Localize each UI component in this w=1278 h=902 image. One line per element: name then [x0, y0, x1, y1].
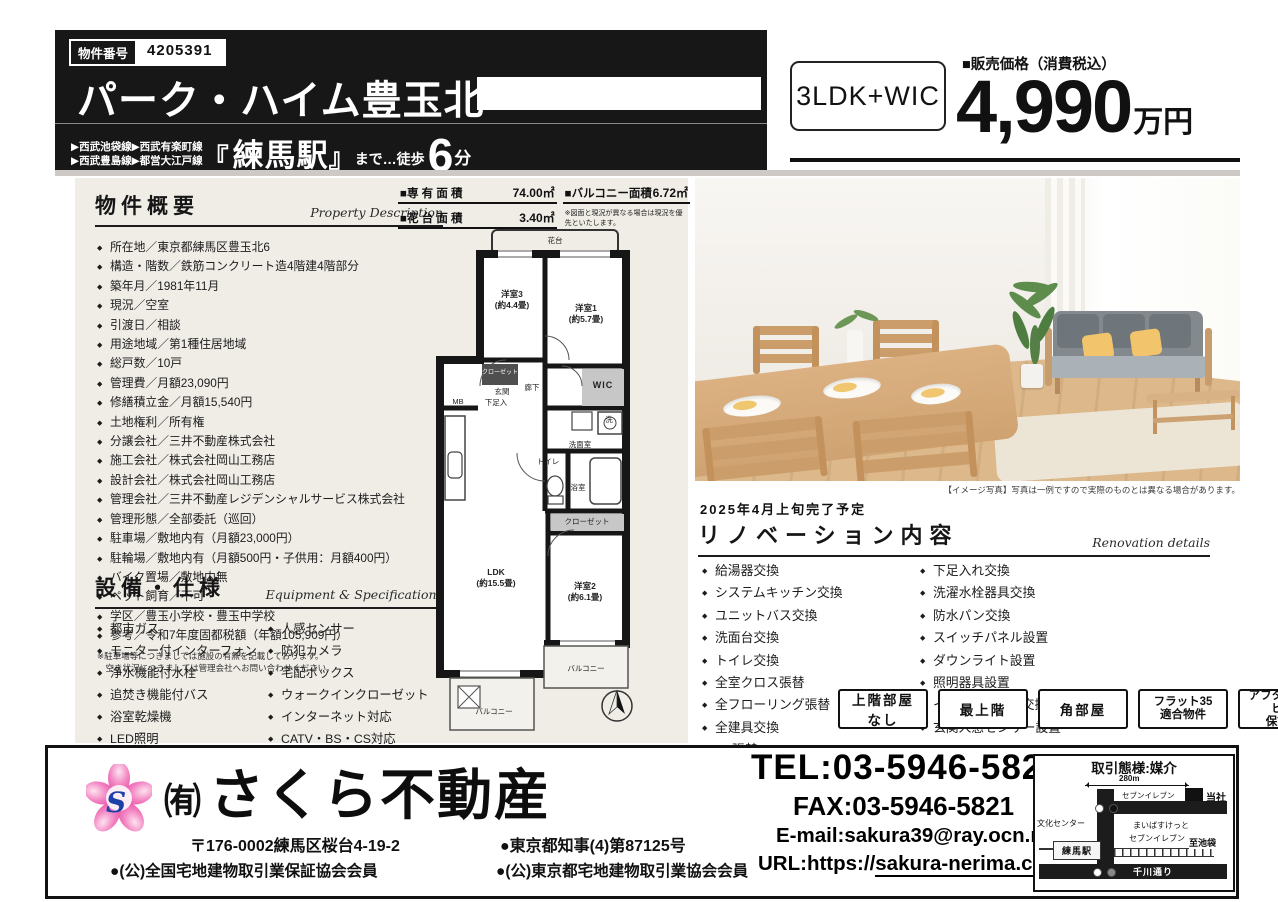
- floor-plan-label: 浴室: [571, 483, 586, 493]
- floor-plan-label: トイレ: [537, 457, 560, 467]
- feature-badge: 最上階: [938, 689, 1028, 729]
- floor-plan-label: 洗面室: [569, 440, 592, 450]
- overview-item: 引渡日／相談: [97, 316, 427, 335]
- renovation-heading: リノベーション内容 Renovation details: [698, 518, 1210, 557]
- traffic-signal-icon: [1107, 868, 1116, 877]
- plant-pot: [1021, 364, 1043, 388]
- our-office-label: 当社: [1206, 789, 1226, 804]
- price-unit: 万円: [1133, 97, 1193, 141]
- area-label-1: ■専 有 面 積: [400, 185, 463, 201]
- company-name: さくら不動産: [209, 750, 551, 830]
- floor-plan-label: 花台: [548, 236, 563, 246]
- equipment-list-left: 都市ガスモニター付インターフォン浄水機能付水栓追焚き機能付バス浴室乾燥機LED照…: [97, 618, 265, 750]
- area-label-3: ■花 台 面 積: [400, 210, 463, 226]
- area-value-1: 74.00㎡: [513, 184, 555, 201]
- equipment-item: 追焚き機能付バス: [97, 684, 265, 706]
- station-line: [1039, 848, 1053, 850]
- logo-letter: S: [106, 786, 126, 819]
- company-license: ●東京都知事(4)第87125号: [500, 832, 686, 856]
- overview-item: 分譲会社／三井不動産株式会社: [97, 432, 427, 451]
- floor-plan-label: 下足入: [485, 398, 508, 408]
- membership-1: ●(公)全国宅地建物取引業保証協会会員: [110, 859, 378, 881]
- floor-plan-label: クローゼット: [565, 517, 610, 527]
- walk-minutes: 6: [428, 135, 454, 175]
- price-amount: 4,990: [956, 62, 1131, 152]
- floor-plan-label: 玄関: [495, 387, 510, 397]
- office-building-icon: [1185, 788, 1203, 801]
- traffic-signal-icon: [1095, 804, 1104, 813]
- feature-badge: フラット35 適合物件: [1138, 689, 1228, 729]
- layout-badge: 3LDK+WIC: [790, 61, 946, 131]
- price-underline: [790, 158, 1240, 162]
- distance-label: 280m: [1117, 774, 1141, 783]
- floor-plan-label: WIC: [593, 380, 614, 392]
- url-prefix: URL:https://: [758, 852, 875, 875]
- rail-line-1: ▶西武池袋線▶西武有楽町線: [71, 140, 203, 154]
- overview-item: 管理費／月額23,090円: [97, 374, 427, 393]
- floor-plan-drawing: [420, 226, 690, 743]
- floor-plan-label: 洋室1 (約5.7畳): [569, 303, 603, 325]
- floor-plan-label: 洋室3 (約4.4畳): [495, 289, 529, 311]
- overview-item: 用途地域／第1種住居地域: [97, 335, 427, 354]
- map-canvas: 280m セブンイレブン 当社 文化センター まいばすけっと セブンイレブン 至…: [1037, 776, 1227, 886]
- overview-item: 駐輪場／敷地内有（月額500円・子供用：月額400円）: [97, 549, 427, 568]
- equipment-heading: 設備・仕様 Equipment & Specifications: [95, 572, 443, 609]
- interior-photo: [695, 178, 1240, 481]
- renovation-item: 給湯器交換: [702, 560, 920, 582]
- sofa-seat: [1049, 356, 1207, 378]
- plan-areas: ■専 有 面 積 74.00㎡ ■バルコニー面積 6.72㎡ ■花 台 面 積 …: [398, 183, 690, 229]
- property-title: パーク・ハイム豊玉北: [77, 68, 485, 126]
- sofa-pillow: [1129, 328, 1162, 358]
- property-number-label: 物件番号: [71, 41, 135, 64]
- flyer-page: 物件番号 4205391 パーク・ハイム豊玉北 ▶西武池袋線▶西武有楽町線 ▶西…: [0, 0, 1278, 902]
- rail-line-2: ▶西武豊島線▶都営大江戸線: [71, 154, 203, 168]
- overview-item: 現況／空室: [97, 296, 427, 315]
- renovation-list-left: 給湯器交換システムキッチン交換ユニットバス交換洗面台交換トイレ交換全室クロス張替…: [702, 560, 920, 762]
- culture-center-label: 文化センター: [1037, 818, 1085, 829]
- fax-number: FAX:03-5946-5821: [793, 791, 1014, 822]
- renovation-item: 洗面台交換: [702, 627, 920, 649]
- floor-plan-label: バルコニー: [567, 664, 604, 674]
- floor-plan-label: 廊下: [525, 383, 540, 393]
- website-url: URL:https://sakura-nerima.com: [758, 852, 1063, 876]
- title-redaction-box: [477, 77, 761, 110]
- floor-plan-label: LDK (約15.5畳): [476, 567, 515, 589]
- header-band: 物件番号 4205391 パーク・ハイム豊玉北 ▶西武池袋線▶西武有楽町線 ▶西…: [55, 30, 767, 170]
- renovation-lists: 給湯器交換システムキッチン交換ユニットバス交換洗面台交換トイレ交換全室クロス張替…: [702, 560, 1210, 762]
- dining-chair: [852, 411, 977, 481]
- equipment-item: 浄水機能付水栓: [97, 662, 265, 684]
- property-number-badge: 物件番号 4205391: [69, 39, 226, 66]
- to-ikebukuro-label: 至池袋: [1189, 836, 1216, 849]
- renovation-item: 防水パン交換: [920, 605, 1210, 627]
- overview-item: 所在地／東京都練馬区豊玉北6: [97, 238, 427, 257]
- equipment-item: モニター付インターフォン: [97, 640, 265, 662]
- feature-badges: 上階部屋なし最上階角部屋フラット35 適合物件アフターサービス 保証付: [838, 689, 1278, 729]
- railway-line: [1114, 848, 1214, 857]
- overview-item: 駐車場／敷地内有（月額23,000円）: [97, 529, 427, 548]
- sofa-arm: [1205, 328, 1212, 386]
- overview-item: 土地権利／所有権: [97, 413, 427, 432]
- overview-item: 構造・階数／鉄筋コンクリート造4階建4階部分: [97, 257, 427, 276]
- photo-caption: 【イメージ写真】写真は一例ですので実際のものとは異なる場合があります。: [860, 484, 1240, 496]
- equipment-title: 設備・仕様: [95, 572, 225, 602]
- overview-item: 設計会社／株式会社岡山工務店: [97, 471, 427, 490]
- area-label-2: ■バルコニー面積: [565, 185, 652, 201]
- renovation-item: ユニットバス交換: [702, 605, 920, 627]
- maibasuketto-label: まいばすけっと: [1133, 820, 1189, 831]
- company-prefix: ㈲: [164, 771, 201, 825]
- renovation-title-en: Renovation details: [1092, 535, 1210, 550]
- station-name: 練馬駅: [233, 130, 329, 175]
- footer: S ㈲ さくら不動産 〒176-0002練馬区桜台4-19-2 ●東京都知事(4…: [45, 745, 1239, 899]
- equipment-item: 都市ガス: [97, 618, 265, 640]
- senkawa-road-label: 千川通り: [1133, 865, 1173, 878]
- overview-item: 修繕積立金／月額15,540円: [97, 393, 427, 412]
- overview-title: 物件概要: [95, 190, 199, 220]
- area-value-2: 6.72㎡: [653, 184, 688, 201]
- renovation-date: 2025年4月上旬完了予定: [700, 499, 866, 518]
- property-number-value: 4205391: [135, 41, 224, 64]
- renovation-item: システムキッチン交換: [702, 582, 920, 604]
- traffic-signal-icon: [1093, 868, 1102, 877]
- station-access: ▶西武池袋線▶西武有楽町線 ▶西武豊島線▶都営大江戸線 『 練馬駅 』 まで…徒…: [71, 130, 471, 175]
- table-vase: [847, 330, 863, 364]
- renovation-list-right: 下足入れ交換洗濯水栓器具交換防水パン交換スイッチパネル設置ダウンライト設置照明器…: [920, 560, 1210, 762]
- distance-arrow: [1085, 785, 1189, 786]
- nerima-station-label: 練馬駅: [1053, 841, 1101, 860]
- overview-item: 施工会社／株式会社岡山工務店: [97, 451, 427, 470]
- overview-item: 築年月／1981年11月: [97, 277, 427, 296]
- floor-plan-label: 洋室2 (約6.1畳): [568, 581, 602, 603]
- membership-2: ●(公)東京都宅地建物取引業協会会員: [496, 859, 748, 881]
- overview-item: 管理会社／三井不動産レジデンシャルサービス株式会社: [97, 490, 427, 509]
- company-address: 〒176-0002練馬区桜台4-19-2: [190, 832, 400, 856]
- header-divider: [55, 123, 767, 124]
- seven-eleven-2: セブンイレブン: [1129, 833, 1185, 844]
- overview-item: 管理形態／全部委託（巡回）: [97, 510, 427, 529]
- seven-eleven-1: セブンイレブン: [1121, 790, 1176, 801]
- floor-plan-label: バルコニー: [475, 707, 512, 717]
- renovation-item: スイッチパネル設置: [920, 627, 1210, 649]
- company-logo: S: [86, 764, 152, 836]
- renovation-item: ダウンライト設置: [920, 650, 1210, 672]
- dining-chair: [702, 416, 828, 481]
- header-shadow: [55, 170, 1240, 176]
- access-map: 取引態様:媒介 280m セブンイレブン 当社 文化センター まいばすけっと セ…: [1033, 754, 1235, 892]
- phone-number: TEL:03-5946-5820: [751, 748, 1063, 788]
- feature-badge: 上階部屋なし: [838, 689, 928, 729]
- vase-sprig: [833, 312, 859, 331]
- equipment-title-en: Equipment & Specifications: [266, 587, 443, 602]
- overview-item: 総戸数／10戸: [97, 354, 427, 373]
- floor-plan-label: MB: [452, 397, 463, 407]
- renovation-item: トイレ交換: [702, 650, 920, 672]
- floor-plan-label: 洗: [605, 415, 613, 425]
- traffic-signal-icon: [1109, 804, 1118, 813]
- equipment-item: 浴室乾燥機: [97, 706, 265, 728]
- floor-plan-label: クローゼット: [482, 370, 518, 378]
- floor-plan: 花台洋室3 (約4.4畳)洋室1 (約5.7畳)クローゼット玄関MB下足入廊下W…: [420, 226, 690, 743]
- feature-badge: 角部屋: [1038, 689, 1128, 729]
- feature-badge: アフターサービス 保証付: [1238, 689, 1278, 729]
- renovation-title: リノベーション内容: [698, 518, 959, 550]
- overview-heading: 物件概要 Property Description: [95, 190, 443, 227]
- company-name-row: ㈲ さくら不動産: [164, 750, 551, 830]
- renovation-item: 下足入れ交換: [920, 560, 1210, 582]
- area-value-3: 3.40㎡: [519, 209, 554, 226]
- renovation-item: 洗濯水栓器具交換: [920, 582, 1210, 604]
- price: 4,990 万円: [956, 62, 1193, 152]
